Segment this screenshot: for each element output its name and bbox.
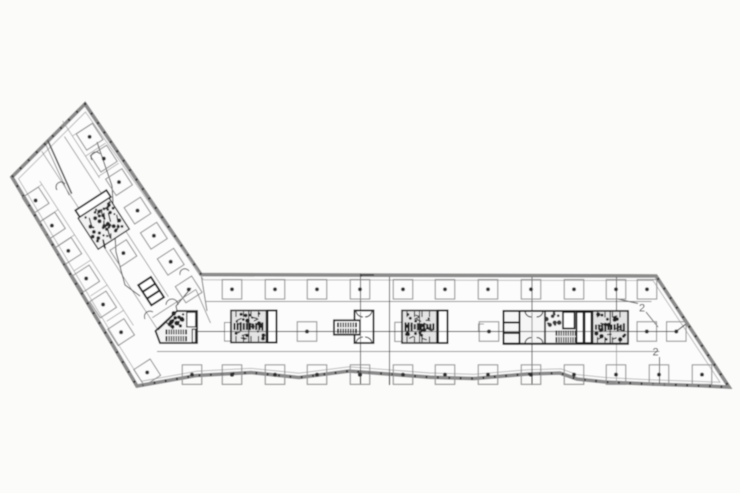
svg-text:2: 2 bbox=[653, 347, 659, 359]
svg-text:2: 2 bbox=[639, 303, 645, 315]
